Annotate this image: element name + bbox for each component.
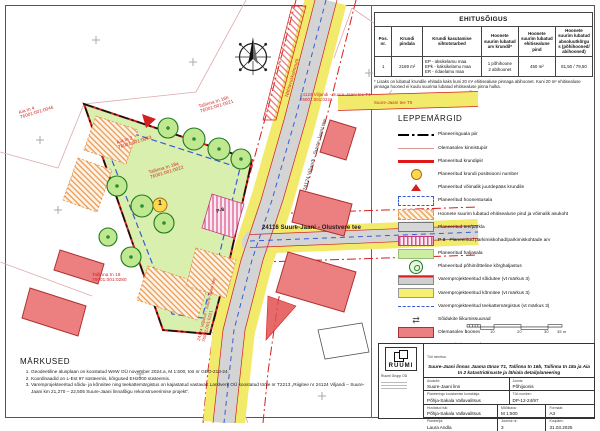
legend-item-label: Planeeritud parkimiskohad/parkimiskohtad… xyxy=(449,238,550,243)
company-name: Ruumi Grupp OÜ xyxy=(381,374,407,378)
legend-swatch xyxy=(398,274,434,286)
legend-swatch xyxy=(398,155,434,167)
legend-item: Varemprojekteeritud teekattemärgistus (v… xyxy=(398,300,594,312)
legend-item-label: Olemasolev kinnistupiir xyxy=(438,146,487,151)
title-block: RUUMI Ruumi Grupp OÜ Töö nimetus: Suure-… xyxy=(378,343,595,419)
project-title-cell: Töö nimetus: Suure-Jaani linnas Jaama tä… xyxy=(424,344,594,377)
notes-block: MÄRKUSED Geodeetiline alusplaan on koost… xyxy=(20,357,368,395)
titleblock-field-joonis: Joonis:Põhijoonis xyxy=(510,378,595,391)
titleblock-field-asukoht: Asukoht:Suure-Jaani linn xyxy=(424,378,510,391)
legend-item: Planeeritud hoonestusala xyxy=(398,195,594,207)
titleblock-field-korraldaja: Planeeringu koostamise korraldaja:Põhja-… xyxy=(424,391,510,404)
legend-swatch xyxy=(398,235,434,247)
legend-swatch xyxy=(398,287,434,299)
legend-item: Planeeritud krundipiir xyxy=(398,155,594,167)
table-title: EHITUSÕIGUS xyxy=(375,13,593,27)
legend-swatch xyxy=(398,248,434,260)
legend-item-label: Planeeritud haljasala xyxy=(438,251,483,256)
legend-item-label: Varemprojekteeritud teekattemärgistus (v… xyxy=(438,304,549,309)
titleblock-field-too-number: Töö number:DP-12-24/97 xyxy=(510,391,595,404)
table-footnote: * Lisaks on lubatud krundile ehitada kak… xyxy=(374,79,593,90)
legend-item: Planeeritud põhimõtteline kõrghaljastus xyxy=(398,261,594,273)
legend-swatch xyxy=(398,314,434,326)
table-header-cell: Hoonete suurim lubatud arv krundil* xyxy=(481,26,518,56)
logo-text: RUUMI xyxy=(389,363,414,369)
legend-swatch xyxy=(398,208,434,220)
legend-swatch xyxy=(398,300,434,312)
legend-item: Varemprojekteeritud kõnnitee (vt märkus … xyxy=(398,287,594,299)
notes-title: MÄRKUSED xyxy=(20,357,368,366)
note-item: Varemprojekteeritud sõidu- ja kõnnitee n… xyxy=(31,382,368,395)
table-cell: 1 põhihoone 2 abihoonet xyxy=(481,57,518,77)
legend-item-label: Olemasolev hoone xyxy=(438,330,478,335)
titleblock-field-formaat: Formaat:A3 xyxy=(546,405,594,418)
legend-swatch xyxy=(398,182,434,194)
table-header-cell: Hoonete suurim lubatud ehitisealune pind xyxy=(518,26,555,56)
table-cell: 1 xyxy=(375,57,392,77)
titleblock-field-planeerija: Planeerija:Laura Andla xyxy=(424,418,498,431)
legend-item-label: Sõidukite liikumissuunad xyxy=(438,317,491,322)
table-header-cell: Hoonete suurim lubatud absoluutkõrgus (p… xyxy=(555,26,592,56)
table-header-cell: Krundi pindala xyxy=(392,26,423,56)
legend-item: Varemprojekteeritud sõidutee (vt märkus … xyxy=(398,274,594,286)
legend-swatch xyxy=(398,327,434,339)
table-header-cell: Krundi kasutamise sihtotstarbed xyxy=(422,26,481,56)
legend-item: 1 Planeeritud krundi positsiooni number xyxy=(398,169,594,181)
company-details-lines xyxy=(381,380,407,391)
legend-item-label: Planeeritud tee/parkla xyxy=(438,225,485,230)
legend-item: Olemasolev kinnistupiir xyxy=(398,142,594,154)
ruumi-logo-icon xyxy=(394,350,408,362)
legend-item-label: Planeeritud krundi positsiooni number xyxy=(438,172,518,177)
table-row: 12169 m²EP - üksikelamu maa EPk - kaksik… xyxy=(375,57,593,77)
plan-sheet: { "ehitusoigus_table": { "title": "EHITU… xyxy=(0,0,600,423)
logo-box: RUUMI xyxy=(385,347,418,371)
titleblock-field-joonise-nr: Joonise nr:3 xyxy=(498,418,547,431)
legend-swatch xyxy=(398,221,434,233)
legend-item-label: Varemprojekteeritud kõnnitee (vt märkus … xyxy=(438,291,530,296)
legend-swatch-extra: P-8 xyxy=(438,238,445,243)
table-header-cell: Pos. nr. xyxy=(375,26,392,56)
legend-item: Planeeringuala piir xyxy=(398,129,594,141)
table-cell: 450 m² xyxy=(518,57,555,77)
legend-item: Hoonete suurim lubatud ehitisealune pind… xyxy=(398,208,594,220)
legend-swatch xyxy=(398,195,434,207)
company-logo: RUUMI Ruumi Grupp OÜ xyxy=(379,344,424,418)
table-cell: 81,50 / 79,50 xyxy=(555,57,592,77)
legend-item-label: Hoonete suurim lubatud ehitisealune pind… xyxy=(438,212,568,217)
legend-item: Planeeritud haljasala xyxy=(398,248,594,260)
note-item: Geodeetiline alusplaan on koostatud WeW … xyxy=(31,369,368,376)
table-cell: EP - üksikelamu maa EPk - kaksikelamu ma… xyxy=(422,57,481,77)
legend-swatch xyxy=(398,129,434,141)
legend-item: Planeeritud tee/parkla xyxy=(398,221,594,233)
legend-item-label: Planeeritud hoonestusala xyxy=(438,198,492,203)
legend-item: Olemasolev hoone xyxy=(398,327,594,339)
legend-item-label: Varemprojekteeritud sõidutee (vt märkus … xyxy=(438,277,530,282)
project-title: Suure-Jaani linnas Jaama tänav T1, Talli… xyxy=(427,364,591,376)
legend-swatch xyxy=(398,142,434,154)
table-cell: 2169 m² xyxy=(392,57,423,77)
legend-item-label: Planeeritud võimalik juurdepääs krundile xyxy=(438,185,524,190)
building-rights-table: EHITUSÕIGUS Pos. nr.Krundi pindalaKrundi… xyxy=(374,12,593,90)
legend-item-label: Planeeringuala piir xyxy=(438,132,478,137)
legend-item: Planeeritud võimalik juurdepääs krundile xyxy=(398,182,594,194)
legend-item: P-8 Planeeritud parkimiskohad/parkimisko… xyxy=(398,235,594,247)
legend: LEPPEMÄRGID Planeeringuala piir Olemasol… xyxy=(398,114,594,366)
legend-item-label: Planeeritud krundipiir xyxy=(438,159,483,164)
titleblock-field-mootkava: Mõõtkava:M 1:500 xyxy=(498,405,547,418)
legend-swatch: 1 xyxy=(398,169,434,181)
titleblock-field-huvitatud-isik: Huvitatud isik:Põhja-Sakala Vallavalitsu… xyxy=(424,405,498,418)
legend-title: LEPPEMÄRGID xyxy=(398,114,594,123)
legend-swatch xyxy=(398,261,434,273)
legend-item: Sõidukite liikumissuunad xyxy=(398,314,594,326)
legend-item-label: Planeeritud põhimõtteline kõrghaljastus xyxy=(438,264,522,269)
titleblock-field-kuupaev: Kuupäev:31.03.2025 xyxy=(546,418,594,431)
